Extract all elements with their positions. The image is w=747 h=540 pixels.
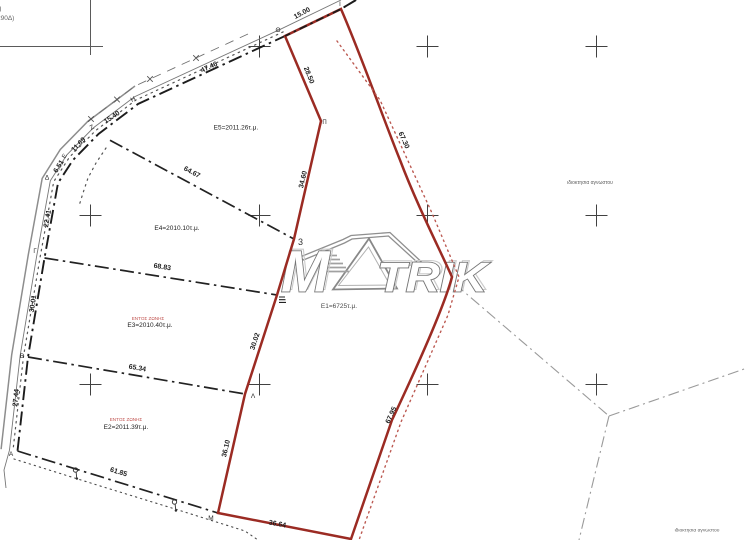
svg-text:B: B xyxy=(20,353,24,360)
svg-text:Λ: Λ xyxy=(251,393,256,400)
svg-text:Θ: Θ xyxy=(275,27,280,34)
svg-text:ΕΝΤΟΣ ΖΩΝΗΣ: ΕΝΤΟΣ ΖΩΝΗΣ xyxy=(110,417,143,422)
svg-text:E5=2011.26τ.μ.: E5=2011.26τ.μ. xyxy=(214,125,259,132)
svg-text:E3=2010.40τ.μ.: E3=2010.40τ.μ. xyxy=(127,322,172,329)
svg-text:ιδιοκτησια αγνωστου: ιδιοκτησια αγνωστου xyxy=(567,180,613,186)
svg-text:M: M xyxy=(208,515,213,522)
svg-text:3: 3 xyxy=(298,237,303,247)
svg-text:A: A xyxy=(9,451,14,458)
svg-text:E2=2011.39τ.μ.: E2=2011.39τ.μ. xyxy=(104,424,149,431)
svg-text:M: M xyxy=(281,240,331,305)
svg-text:TRIK: TRIK xyxy=(377,254,490,301)
svg-text:ιδιοκτησια αγνωστου: ιδιοκτησια αγνωστου xyxy=(675,528,720,534)
svg-text:): ) xyxy=(0,6,1,13)
svg-text:ΕΝΤΟΣ ΖΩΝΗΣ: ΕΝΤΟΣ ΖΩΝΗΣ xyxy=(132,316,165,321)
svg-text:Π: Π xyxy=(322,120,326,126)
svg-text:Δ: Δ xyxy=(45,175,50,182)
svg-text:E4=2010.10τ.μ.: E4=2010.10τ.μ. xyxy=(154,225,199,232)
svg-text:290Δ): 290Δ) xyxy=(0,15,14,22)
svg-text:E1=6725τ.μ.: E1=6725τ.μ. xyxy=(321,303,357,310)
